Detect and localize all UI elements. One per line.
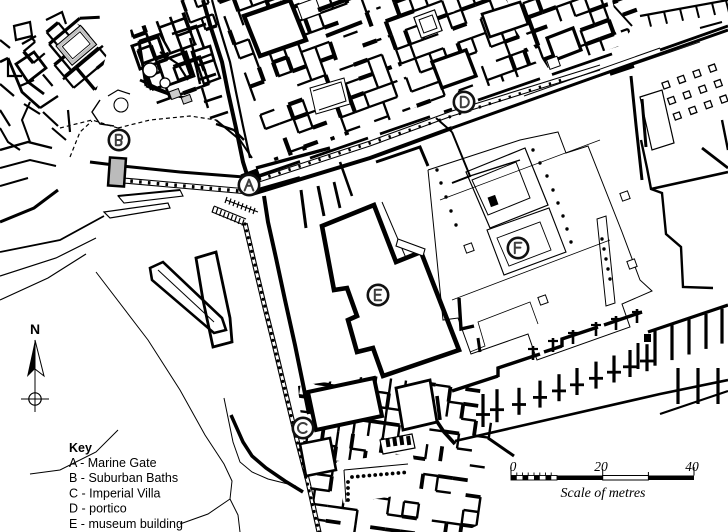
- svg-text:0: 0: [510, 459, 517, 474]
- svg-text:B - Suburban Baths: B - Suburban Baths: [69, 471, 178, 485]
- svg-text:E - museum building: E - museum building: [69, 517, 183, 531]
- svg-text:40: 40: [685, 459, 699, 474]
- svg-text:A - Marine Gate: A - Marine Gate: [69, 456, 157, 470]
- svg-text:D - portico: D - portico: [69, 502, 127, 516]
- svg-text:N: N: [30, 321, 40, 337]
- svg-text:Scale of metres: Scale of metres: [560, 486, 646, 501]
- svg-text:C - Imperial Villa: C - Imperial Villa: [69, 486, 161, 500]
- svg-text:20: 20: [594, 459, 608, 474]
- svg-text:Key: Key: [69, 441, 92, 455]
